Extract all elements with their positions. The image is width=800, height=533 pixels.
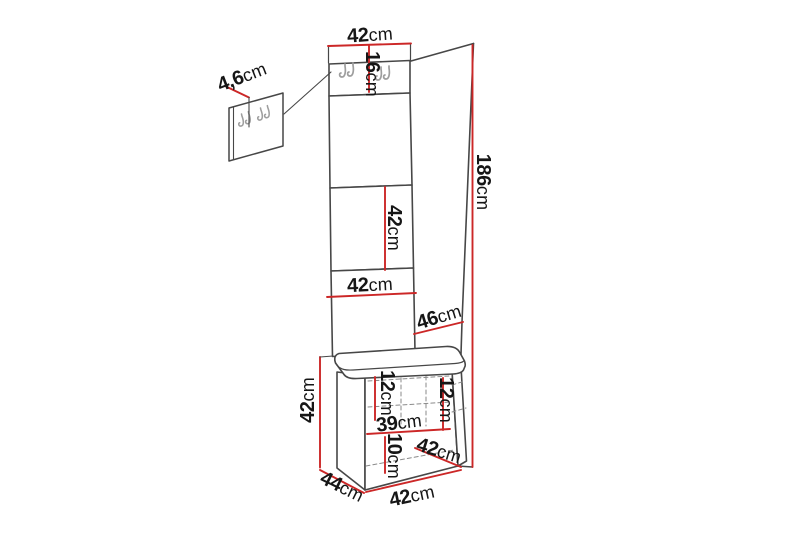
dim-unit: cm (384, 227, 404, 251)
dim-label-hook-panel-height: 16cm (362, 51, 382, 97)
dim-unit: cm (473, 186, 493, 210)
dim-value: 42 (383, 205, 405, 226)
furniture-dimension-diagram: 42cm 16cm 4,6cm 42cm 186cm 42cm 46cm 42c… (0, 0, 800, 533)
dim-value: 16 (361, 51, 383, 72)
dim-label-drawer-right-height: 12cm (436, 377, 456, 423)
dim-unit: cm (396, 410, 423, 433)
dim-label-base-height: 10cm (384, 433, 404, 479)
dim-unit: cm (298, 377, 318, 401)
dim-value: 10 (383, 433, 405, 454)
dim-value: 186 (472, 154, 494, 186)
dim-value: 42 (346, 24, 369, 47)
bench-left-side (337, 372, 365, 490)
dim-value: 12 (435, 377, 457, 398)
dim-value: 42 (347, 274, 370, 297)
dim-unit: cm (436, 399, 456, 423)
dim-label-bench-height: 42cm (298, 377, 318, 423)
dim-unit: cm (384, 455, 404, 479)
dim-unit: cm (368, 274, 393, 295)
dim-label-top-width: 42cm (346, 23, 393, 46)
dim-label-panel-width: 42cm (347, 274, 394, 296)
dim-unit: cm (368, 23, 394, 45)
dim-label-upper-panel-height: 42cm (384, 205, 404, 251)
dim-value: 42 (297, 401, 319, 422)
dim-label-drawer-left-height: 12cm (377, 370, 397, 416)
dim-value: 12 (376, 370, 398, 391)
dim-label-total-height: 186cm (473, 154, 493, 211)
dim-unit: cm (362, 73, 382, 97)
